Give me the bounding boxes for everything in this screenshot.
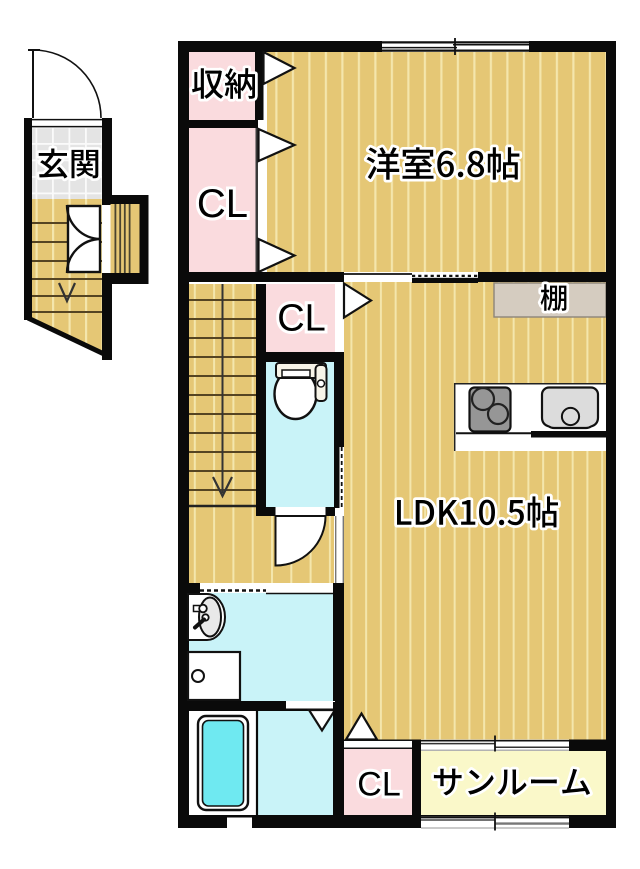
- svg-text:CL: CL: [277, 298, 326, 340]
- svg-text:CL: CL: [357, 766, 400, 804]
- svg-text:CL: CL: [197, 182, 248, 226]
